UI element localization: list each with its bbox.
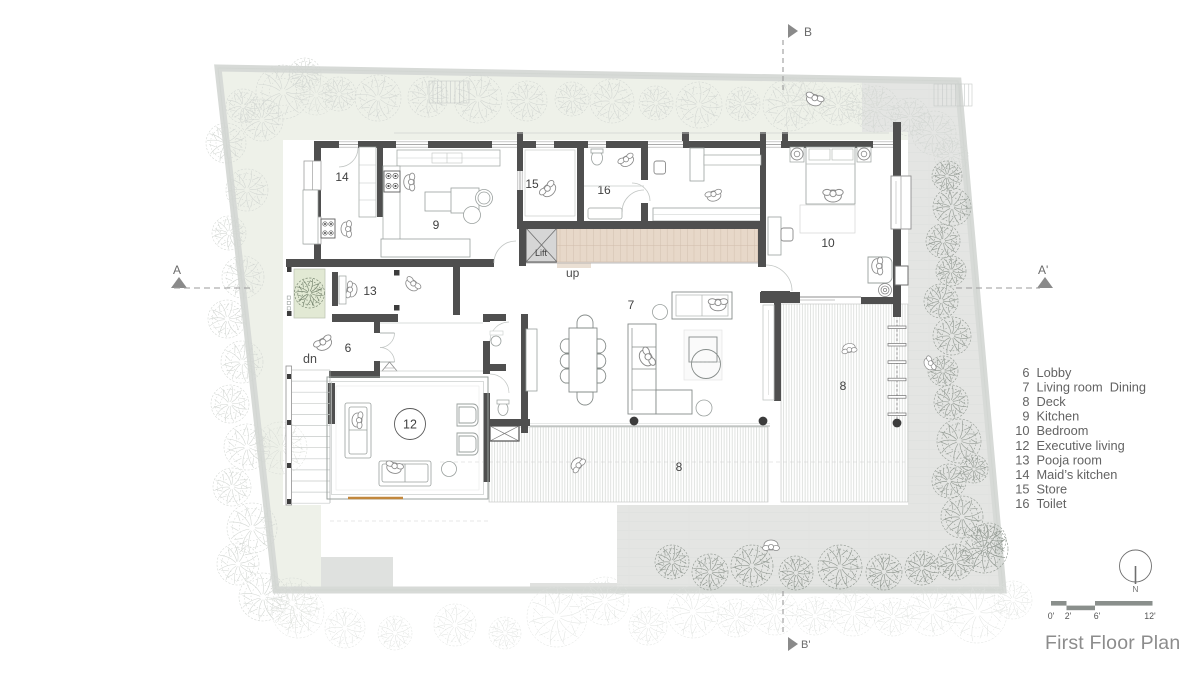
svg-text:7: 7 [1022,380,1029,395]
svg-text:12: 12 [1015,438,1029,453]
svg-text:B: B [804,25,812,39]
svg-text:up: up [566,266,580,280]
svg-text:6': 6' [1094,611,1101,621]
svg-text:Lobby: Lobby [1037,365,1072,380]
svg-text:6: 6 [345,341,352,355]
svg-text:7: 7 [628,298,635,312]
svg-text:6: 6 [1022,365,1029,380]
svg-text:16: 16 [1015,496,1029,511]
svg-text:B': B' [801,639,810,651]
svg-text:Pooja room: Pooja room [1037,452,1102,467]
svg-text:12': 12' [1144,611,1156,621]
svg-text:13: 13 [1015,452,1029,467]
svg-text:9: 9 [1022,409,1029,424]
svg-text:Toilet: Toilet [1037,496,1067,511]
svg-text:Maid’s kitchen: Maid’s kitchen [1037,467,1118,482]
svg-text:10: 10 [1015,423,1029,438]
svg-text:12: 12 [403,418,417,432]
svg-text:N: N [1132,584,1138,594]
svg-text:A': A' [1038,263,1048,277]
svg-text:15: 15 [525,177,539,191]
svg-text:8: 8 [1022,394,1029,409]
svg-text:8: 8 [676,460,683,474]
svg-text:10: 10 [821,236,835,250]
svg-text:16: 16 [597,183,611,197]
svg-text:14: 14 [335,170,349,184]
svg-text:Bedroom: Bedroom [1037,423,1089,438]
svg-text:A: A [173,263,181,277]
svg-text:2': 2' [1065,611,1072,621]
svg-text:8: 8 [840,379,847,393]
svg-text:Lift: Lift [535,248,548,258]
svg-text:13: 13 [363,284,377,298]
svg-text:14: 14 [1015,467,1029,482]
svg-text:Kitchen: Kitchen [1037,409,1080,424]
svg-text:Executive living: Executive living [1037,438,1125,453]
svg-text:0': 0' [1048,611,1055,621]
svg-text:dn: dn [303,352,317,366]
svg-text:First Floor Plan: First Floor Plan [1045,632,1180,654]
svg-text:Living room Dining: Living room Dining [1037,380,1147,395]
svg-text:Store: Store [1037,481,1068,496]
svg-text:9: 9 [433,218,440,232]
svg-text:Deck: Deck [1037,394,1067,409]
svg-text:15: 15 [1015,481,1029,496]
